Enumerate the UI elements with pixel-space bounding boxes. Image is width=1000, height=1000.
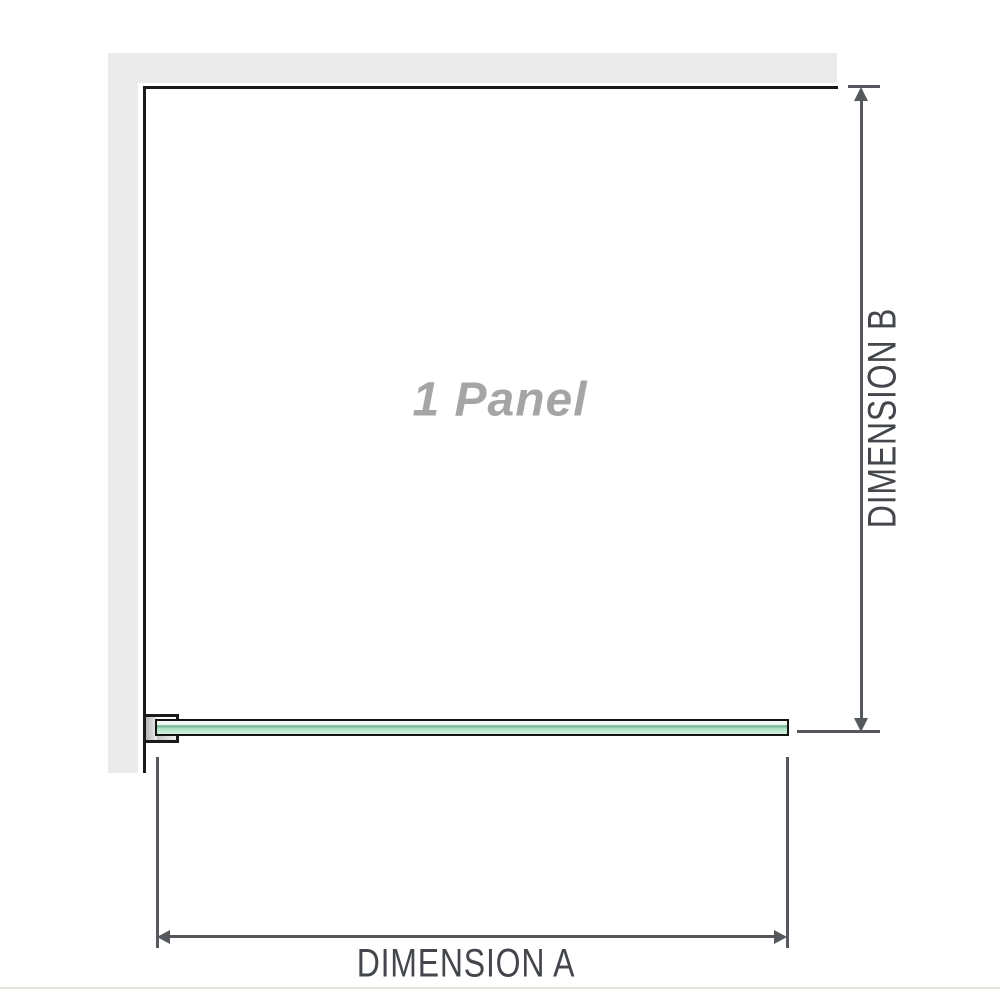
glass-panel — [155, 719, 789, 736]
wall-edge-top-line — [143, 86, 838, 89]
arrow-down-icon — [854, 718, 868, 732]
arrow-up-icon — [854, 87, 868, 101]
arrow-right-icon — [774, 930, 787, 944]
wall-left-strip — [108, 53, 138, 773]
wall-edge-left-line — [143, 86, 146, 773]
dim-b-label: DIMENSION B — [861, 308, 906, 528]
wall-top-strip — [108, 53, 837, 83]
dim-a-extension-left — [156, 757, 159, 948]
panel-count-label: 1 Panel — [412, 373, 587, 428]
dim-a-extension-right — [786, 757, 789, 948]
dim-a-line — [168, 935, 778, 938]
diagram-canvas: 1 Panel DIMENSION B DIMENSION A — [0, 0, 1000, 1000]
dim-b-line — [860, 99, 863, 719]
arrow-left-icon — [157, 930, 170, 944]
dim-a-label: DIMENSION A — [357, 942, 576, 987]
bottom-separator-line — [0, 987, 1000, 989]
